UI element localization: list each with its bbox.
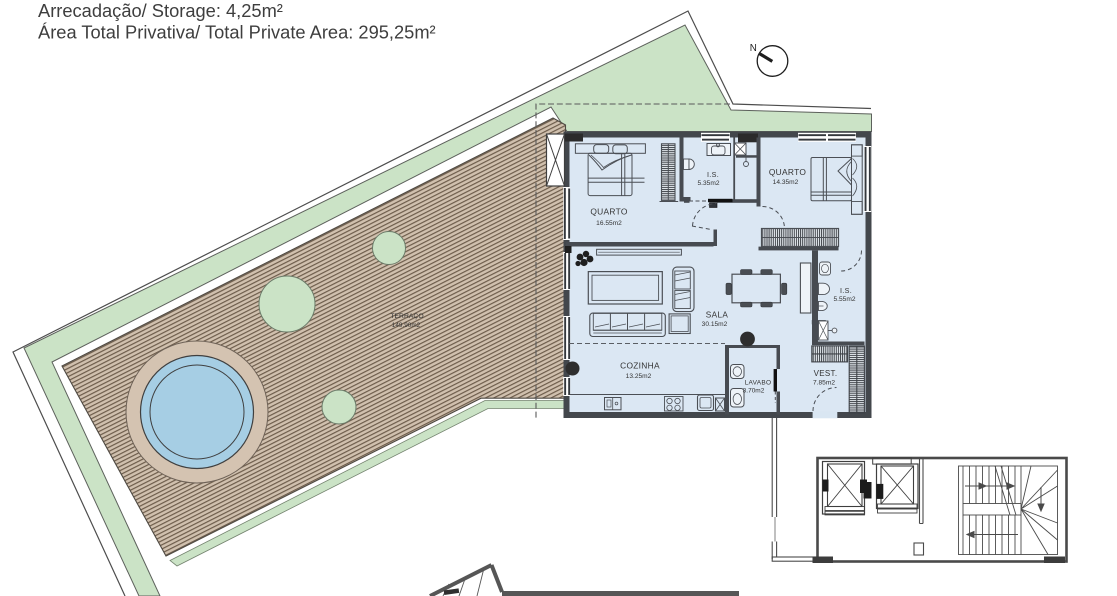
svg-text:QUARTO: QUARTO <box>769 167 807 177</box>
svg-text:Arrecadação/ Storage: 4,25m²: Arrecadação/ Storage: 4,25m² <box>38 0 283 21</box>
svg-text:Área Total Privativa/ Total Pr: Área Total Privativa/ Total Private Area… <box>38 22 436 43</box>
svg-text:TERRAÇO: TERRAÇO <box>390 313 423 320</box>
svg-text:COZINHA: COZINHA <box>620 361 660 371</box>
svg-text:N: N <box>750 43 757 54</box>
svg-text:SALA: SALA <box>706 311 729 320</box>
svg-text:I.S.: I.S. <box>707 170 719 179</box>
svg-text:VEST.: VEST. <box>814 369 838 378</box>
svg-text:30.15m2: 30.15m2 <box>702 321 728 328</box>
svg-text:149.90m2: 149.90m2 <box>392 322 421 329</box>
svg-text:5.55m2: 5.55m2 <box>834 296 856 303</box>
svg-text:14.35m2: 14.35m2 <box>773 179 799 186</box>
svg-text:3.70m2: 3.70m2 <box>743 388 765 395</box>
svg-text:5.35m2: 5.35m2 <box>698 180 720 187</box>
svg-text:QUARTO: QUARTO <box>590 207 628 217</box>
svg-text:LAVABO: LAVABO <box>745 380 772 387</box>
svg-text:13.25m2: 13.25m2 <box>626 373 652 380</box>
svg-text:7.85m2: 7.85m2 <box>813 380 835 387</box>
svg-text:16.55m2: 16.55m2 <box>596 220 622 227</box>
svg-text:I.S.: I.S. <box>840 286 852 295</box>
